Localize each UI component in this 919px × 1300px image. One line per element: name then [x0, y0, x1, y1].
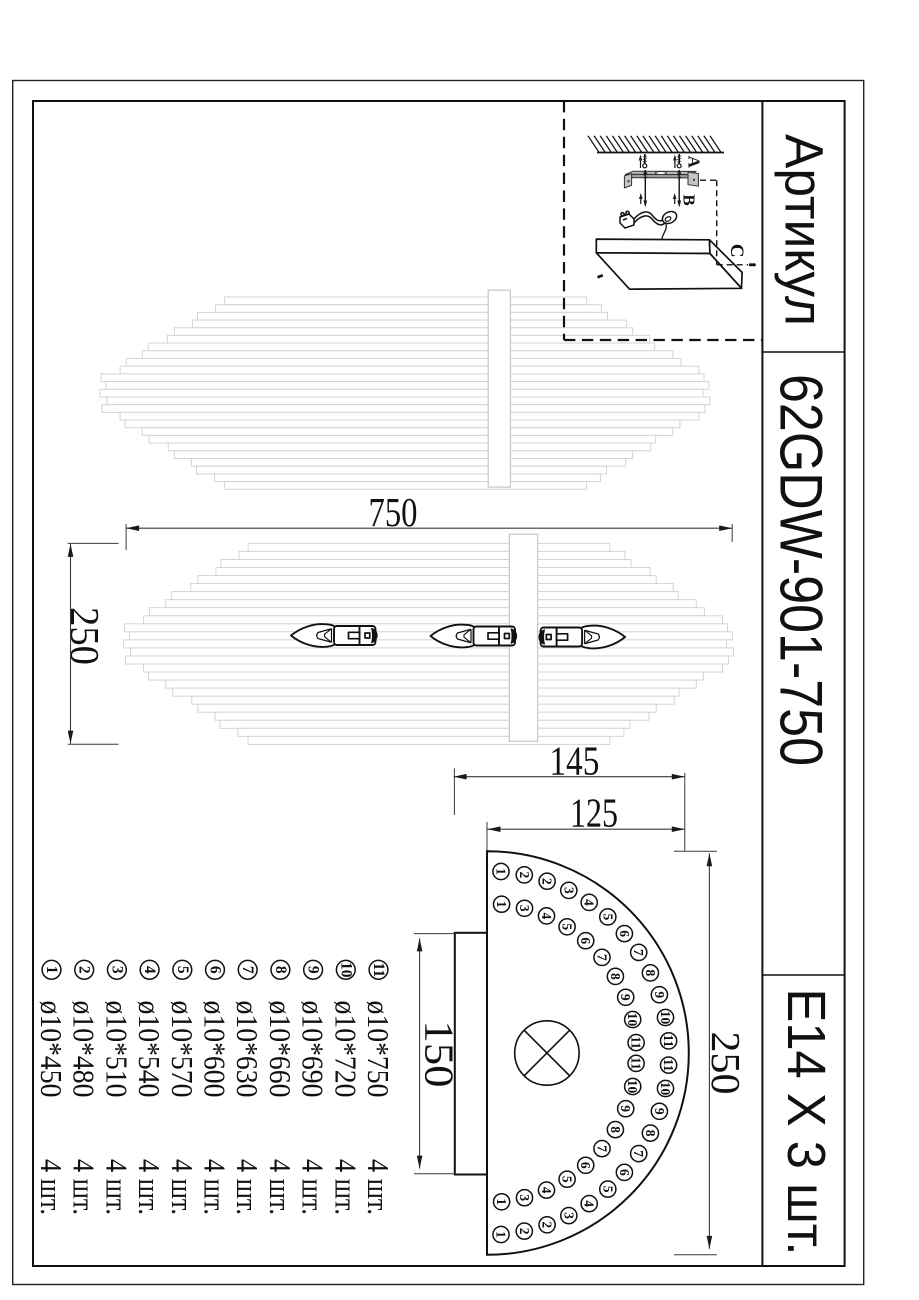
- svg-text:Артикул: Артикул: [774, 134, 834, 326]
- svg-text:8: 8: [272, 966, 289, 974]
- svg-text:3: 3: [561, 1212, 576, 1219]
- svg-text:8: 8: [643, 970, 658, 977]
- svg-text:4 шт.: 4 шт.: [263, 1159, 298, 1215]
- svg-text:4 шт.: 4 шт.: [361, 1159, 396, 1215]
- svg-text:10: 10: [625, 1080, 640, 1094]
- svg-text:9: 9: [305, 966, 322, 974]
- svg-text:4 шт.: 4 шт.: [230, 1159, 265, 1215]
- svg-text:2: 2: [517, 872, 532, 879]
- svg-text:1: 1: [494, 868, 509, 875]
- svg-text:8: 8: [643, 1130, 658, 1137]
- svg-text:11: 11: [629, 1057, 644, 1070]
- svg-text:11: 11: [661, 1035, 676, 1048]
- svg-text:6: 6: [617, 1169, 632, 1176]
- svg-text:4 шт.: 4 шт.: [99, 1159, 134, 1215]
- svg-text:B: B: [679, 194, 698, 205]
- svg-text:150: 150: [417, 1021, 463, 1088]
- svg-text:10: 10: [625, 1013, 640, 1027]
- svg-text:9: 9: [652, 991, 667, 998]
- svg-text:5: 5: [174, 966, 191, 974]
- svg-text:1: 1: [494, 901, 509, 908]
- svg-text:4 шт.: 4 шт.: [296, 1159, 331, 1215]
- svg-text:8: 8: [608, 973, 623, 980]
- svg-text:ø10*510: ø10*510: [99, 1001, 134, 1098]
- svg-text:5: 5: [560, 1176, 575, 1183]
- svg-text:1: 1: [494, 1231, 509, 1238]
- svg-text:10: 10: [658, 1082, 673, 1096]
- svg-text:6: 6: [617, 930, 632, 937]
- svg-text:250: 250: [62, 607, 108, 665]
- svg-text:6: 6: [578, 1162, 593, 1169]
- svg-text:1: 1: [43, 966, 60, 974]
- svg-text:4 шт.: 4 шт.: [328, 1159, 363, 1215]
- svg-text:4: 4: [141, 966, 158, 974]
- svg-text:4 шт.: 4 шт.: [132, 1159, 167, 1215]
- svg-text:8: 8: [608, 1126, 623, 1133]
- svg-text:10: 10: [337, 962, 354, 978]
- svg-text:ø10*720: ø10*720: [328, 1001, 363, 1098]
- svg-text:5: 5: [600, 1186, 615, 1193]
- svg-text:5: 5: [600, 914, 615, 921]
- svg-text:4: 4: [539, 1187, 554, 1194]
- svg-text:4: 4: [539, 913, 554, 920]
- svg-text:1: 1: [494, 1198, 509, 1205]
- svg-text:ø10*600: ø10*600: [198, 1001, 233, 1098]
- svg-text:A: A: [685, 156, 704, 169]
- svg-text:3: 3: [561, 887, 576, 894]
- svg-text:6: 6: [207, 966, 224, 974]
- svg-text:2: 2: [540, 1221, 555, 1228]
- svg-text:ø10*450: ø10*450: [34, 1001, 69, 1098]
- svg-text:7: 7: [595, 954, 610, 961]
- svg-text:E14 X 3 шт.: E14 X 3 шт.: [776, 989, 836, 1256]
- svg-text:9: 9: [618, 1105, 633, 1112]
- svg-text:ø10*480: ø10*480: [67, 1001, 102, 1098]
- svg-text:3: 3: [517, 905, 532, 912]
- svg-text:7: 7: [595, 1145, 610, 1152]
- svg-text:4: 4: [582, 1200, 597, 1207]
- svg-text:ø10*750: ø10*750: [361, 1001, 396, 1098]
- svg-text:3: 3: [517, 1194, 532, 1201]
- svg-text:4 шт.: 4 шт.: [34, 1159, 69, 1215]
- svg-text:C: C: [726, 244, 747, 258]
- svg-text:6: 6: [578, 937, 593, 944]
- svg-text:9: 9: [618, 994, 633, 1001]
- svg-text:ø10*630: ø10*630: [230, 1001, 265, 1098]
- svg-text:4: 4: [582, 899, 597, 906]
- svg-text:62GDW-901-750: 62GDW-901-750: [768, 374, 835, 766]
- svg-text:ø10*690: ø10*690: [296, 1001, 331, 1098]
- svg-text:ø10*570: ø10*570: [165, 1001, 200, 1098]
- svg-text:10: 10: [658, 1011, 673, 1025]
- svg-text:2: 2: [540, 878, 555, 885]
- svg-text:2: 2: [76, 966, 93, 974]
- svg-text:7: 7: [239, 966, 256, 974]
- svg-text:11: 11: [629, 1036, 644, 1049]
- svg-text:3: 3: [108, 966, 125, 974]
- svg-text:125: 125: [570, 790, 618, 836]
- svg-text:4 шт.: 4 шт.: [67, 1159, 102, 1215]
- svg-text:2: 2: [517, 1228, 532, 1235]
- svg-text:4 шт.: 4 шт.: [198, 1159, 233, 1215]
- svg-text:11: 11: [661, 1059, 676, 1072]
- svg-text:ø10*660: ø10*660: [263, 1001, 298, 1098]
- svg-text:7: 7: [631, 949, 646, 956]
- svg-text:ø10*540: ø10*540: [132, 1001, 167, 1098]
- svg-text:4 шт.: 4 шт.: [165, 1159, 200, 1215]
- svg-text:11: 11: [370, 962, 387, 977]
- svg-text:9: 9: [652, 1108, 667, 1115]
- svg-text:5: 5: [560, 923, 575, 930]
- svg-text:7: 7: [631, 1150, 646, 1157]
